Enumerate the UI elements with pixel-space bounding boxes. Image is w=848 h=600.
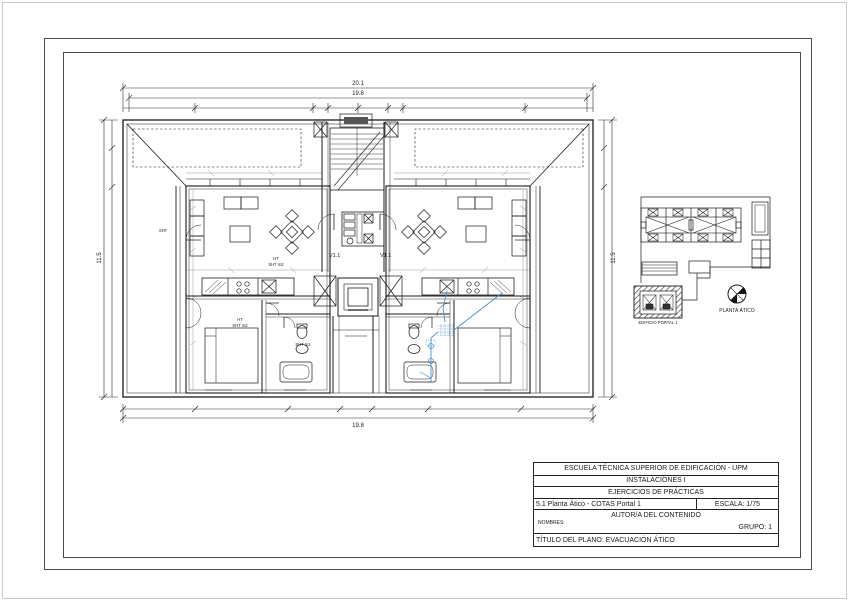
- key-plan-building-label: EDIFICIO PORTAL 1: [638, 320, 678, 325]
- sheet-name: 5.1 Planta Ático - COTAS Portal 1: [534, 501, 696, 508]
- title-block: ESCUELA TÉCNICA SUPERIOR DE EDIFICACIÓN …: [533, 462, 779, 547]
- vent-label-left: V1.1: [329, 253, 340, 259]
- drawing-sheet: 20.1 19.8 19.8 11.5 11.5: [0, 0, 848, 600]
- dim-top-outer: 20.1: [352, 81, 364, 87]
- author-header: AUTOR/A DEL CONTENIDO: [534, 512, 778, 519]
- bath-sht-label: SHT m2: [295, 342, 311, 347]
- scale-value: ESCALA: 1/75: [696, 499, 778, 510]
- key-plan-orientation-label: PLANTA ÁTICO: [719, 307, 755, 314]
- dim-right: 11.5: [611, 252, 617, 264]
- bedroom-ht-label: HT: [237, 317, 243, 322]
- building-outline: [123, 120, 593, 397]
- title-block-course: INSTALACIONES I: [534, 476, 778, 488]
- apartment-right: [386, 124, 589, 393]
- dim-bottom: 19.8: [352, 423, 364, 429]
- terrace-sht-label: SHT: [159, 228, 168, 233]
- title-block-author-section: AUTOR/A DEL CONTENIDO NOMBRES: GRUPO: 1: [534, 510, 778, 534]
- title-block-exercise: EJERCICIOS DE PRÁCTICAS: [534, 487, 778, 499]
- bedroom-sht-label: SHT m2: [232, 323, 248, 328]
- key-plan: [634, 197, 770, 318]
- dim-left: 11.5: [97, 252, 103, 264]
- title-block-sheet-row: 5.1 Planta Ático - COTAS Portal 1 ESCALA…: [534, 499, 778, 511]
- evacuation-pipes: [420, 291, 502, 383]
- north-indicator: [728, 285, 746, 303]
- names-label: NOMBRES:: [538, 521, 565, 526]
- apartment-left: [127, 124, 330, 393]
- vent-label-right: V1.1: [380, 253, 391, 259]
- group-label: GRUPO: 1: [739, 524, 772, 531]
- living-ht-label: HT: [273, 256, 279, 261]
- dim-top-inner: 19.8: [352, 91, 364, 97]
- plan-title: TÍTULO DEL PLANO: EVACUACIÓN ÁTICO: [534, 534, 778, 546]
- living-sht-label: SHT m2: [268, 262, 284, 267]
- title-block-school: ESCUELA TÉCNICA SUPERIOR DE EDIFICACIÓN …: [534, 463, 778, 476]
